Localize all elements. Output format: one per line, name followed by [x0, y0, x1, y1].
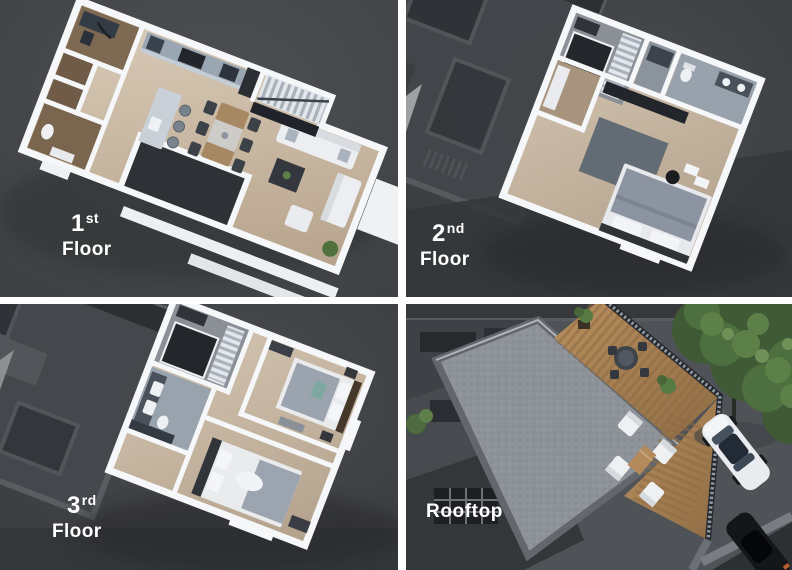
divider-vertical [398, 0, 406, 570]
floor-number: 3 [67, 492, 81, 519]
floor-word: Floor [420, 250, 470, 269]
first-floor-label: 1st Floor [62, 212, 112, 259]
ordinal-suffix: nd [447, 220, 465, 236]
floor-plan-montage: 1st Floor [0, 0, 792, 570]
floor-number: 2 [432, 220, 446, 247]
rooftop-render [406, 304, 792, 570]
rooftop-word: Rooftop [426, 501, 503, 522]
third-floor-label: 3rd Floor [52, 494, 102, 541]
panel-rooftop: Rooftop [406, 304, 792, 570]
floor-word: Floor [52, 522, 102, 541]
second-floor-label: 2nd Floor [420, 222, 470, 269]
floor-ordinal: 1st [62, 212, 112, 236]
panel-third-floor: 3rd Floor [0, 304, 398, 570]
ordinal-suffix: st [86, 210, 99, 226]
first-floor-render [0, 0, 398, 297]
ordinal-suffix: rd [82, 492, 97, 508]
rooftop-label: Rooftop [426, 502, 503, 521]
floor-number: 1 [71, 210, 85, 237]
floor-ordinal: 2nd [420, 222, 470, 246]
divider-horizontal [0, 297, 792, 304]
panel-second-floor: 2nd Floor [406, 0, 792, 297]
panel-first-floor: 1st Floor [0, 0, 398, 297]
floor-ordinal: 3rd [52, 494, 102, 518]
floor-word: Floor [62, 240, 112, 259]
